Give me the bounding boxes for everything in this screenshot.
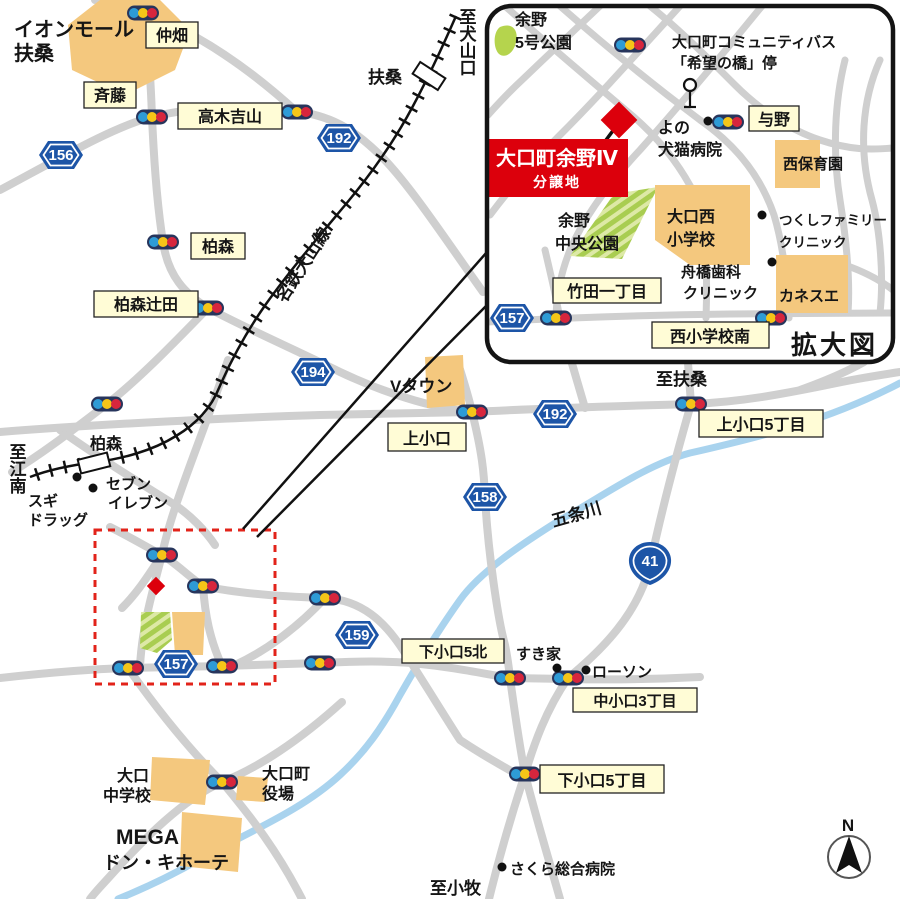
town-hall-label-line1: 大口町 xyxy=(262,764,310,783)
traffic-signal xyxy=(509,767,541,782)
route-shield-192-number: 192 xyxy=(326,130,351,147)
mega-donki-label-line2: ドン・キホーテ xyxy=(103,853,229,873)
seven-eleven-label-line1: セブン xyxy=(106,475,151,493)
yono-hospital-label-line2: 犬猫病院 xyxy=(658,140,722,159)
nishi-elementary-label-line2: 小学校 xyxy=(667,230,716,249)
area-label-kashiwamori-tsujita: 柏森辻田 xyxy=(114,295,178,314)
fuso-station-label: 扶桑 xyxy=(368,67,403,87)
traffic-signal xyxy=(552,671,584,686)
traffic-signal xyxy=(281,105,313,120)
area-label-kamioguchi-5chome: 上小口5丁目 xyxy=(717,416,806,434)
route-shield-157-number: 157 xyxy=(163,656,188,673)
yono-chuo-park-label-line1: 余野 xyxy=(557,211,590,230)
sakura-hospital-label: さくら総合病院 xyxy=(510,860,615,878)
area-label-kamioguchi: 上小口 xyxy=(403,430,451,448)
area-label-takagi-yoshiyama: 高木吉山 xyxy=(198,107,262,126)
kanesue-label: カネスエ xyxy=(779,288,839,305)
area-label-shimooguchi-5-kita: 下小口5北 xyxy=(419,644,487,661)
traffic-signal xyxy=(540,311,572,326)
yono-hospital-label-line1: よの xyxy=(658,119,690,137)
route-shield-158-number: 158 xyxy=(472,489,497,506)
funahashi-clinic-dot xyxy=(768,258,777,267)
nishi-elementary-label-line1: 大口西 xyxy=(667,207,715,226)
traffic-signal xyxy=(136,110,168,125)
route-shield-159-number: 159 xyxy=(344,627,369,644)
sukiya-label: すき家 xyxy=(516,645,561,663)
yono-park-label-line2: 5号公園 xyxy=(515,34,572,52)
funahashi-dental-label-line2: クリニック xyxy=(683,285,758,302)
area-label-nishi-shogakko-minami: 西小学校南 xyxy=(670,327,750,346)
inset-map: 157 余野 5号公園 大口町コミュニティバス 「希望の橋」停 よの 犬猫病院 … xyxy=(487,6,893,362)
route-shield-156-number: 156 xyxy=(48,147,73,164)
kashiwamori-station-label: 柏森 xyxy=(90,434,123,453)
yono-park-label-line1: 余野 xyxy=(514,10,547,29)
area-label-nakahata: 仲畑 xyxy=(156,26,188,45)
traffic-signal xyxy=(147,235,179,250)
nishi-hoikuen-label: 西保育園 xyxy=(783,155,843,173)
to-fuso-label: 至扶桑 xyxy=(656,369,708,389)
area-label-saito: 斉藤 xyxy=(94,86,127,105)
route-shield-192-number: 192 xyxy=(542,406,567,423)
seven-eleven-dot xyxy=(89,484,98,493)
junior-high-building xyxy=(150,757,210,805)
funahashi-dental-label-line1: 舟橋歯科 xyxy=(681,263,741,281)
community-bus-label-line1: 大口町コミュニティバス xyxy=(672,33,836,51)
school-block-in-box xyxy=(172,612,205,655)
junior-high-label-line2: 中学校 xyxy=(103,786,152,805)
route-shield-41-number: 41 xyxy=(642,553,659,570)
area-label-nakaoguchi-3chome: 中小口3丁目 xyxy=(593,692,676,710)
junior-high-label-line1: 大口 xyxy=(117,766,149,785)
aeon-mall-label-line1: イオンモール xyxy=(14,19,134,41)
town-hall-label-line2: 役場 xyxy=(262,784,294,803)
location-map: 156 192 194 192 158 159 157 41 仲畑 斉藤 高木吉… xyxy=(0,0,900,899)
sugi-drug-label-line1: スギ xyxy=(28,492,58,510)
vtown-label: Vタウン xyxy=(390,377,452,396)
area-label-takeda-1chome: 竹田一丁目 xyxy=(566,282,647,301)
traffic-signal xyxy=(456,405,488,420)
traffic-signal xyxy=(614,38,646,53)
inset-caption: 拡大図 xyxy=(791,330,878,360)
route-shield-157-number: 157 xyxy=(499,310,524,327)
community-bus-label-line2: 「希望の橋」停 xyxy=(672,54,777,72)
north-label: N xyxy=(842,816,854,835)
sugi-drug-dot xyxy=(73,473,82,482)
yono-hospital-dot xyxy=(704,117,713,126)
traffic-signal xyxy=(91,397,123,412)
aeon-mall-label-line2: 扶桑 xyxy=(14,41,55,65)
route-shield-194-number: 194 xyxy=(300,364,326,381)
area-label-shimooguchi-5chome: 下小口5丁目 xyxy=(558,772,647,790)
traffic-signal xyxy=(309,591,341,606)
sakura-hospital-dot xyxy=(498,863,507,872)
map-canvas: 156 192 194 192 158 159 157 41 仲畑 斉藤 高木吉… xyxy=(0,0,900,899)
sukiya-dot xyxy=(553,664,562,673)
traffic-signal xyxy=(206,775,238,790)
traffic-signal xyxy=(146,548,178,563)
to-konan-label: 至江南 xyxy=(7,443,27,495)
traffic-signal xyxy=(112,661,144,676)
traffic-signal xyxy=(494,671,526,686)
traffic-signal xyxy=(187,579,219,594)
area-label-kashiwamori: 柏森 xyxy=(202,237,235,256)
to-komaki-label: 至小牧 xyxy=(430,878,482,898)
traffic-signal xyxy=(675,397,707,412)
mega-donki-label-line1: MEGA xyxy=(116,826,179,849)
sugi-drug-label-line2: ドラッグ xyxy=(28,511,88,529)
to-inuyamaguchi-label: 至犬山口 xyxy=(457,8,477,76)
traffic-signal xyxy=(712,115,744,130)
area-label-yono: 与野 xyxy=(758,111,790,129)
tsukushi-clinic-label-line1: つくしファミリー xyxy=(779,213,887,228)
traffic-signal xyxy=(206,659,238,674)
tsukushi-clinic-label-line2: クリニック xyxy=(779,235,847,250)
yono-chuo-park-label-line2: 中央公園 xyxy=(555,234,619,253)
lawson-dot xyxy=(582,666,591,675)
traffic-signal xyxy=(304,656,336,671)
site-title-line2: 分譲地 xyxy=(533,174,581,190)
tsukushi-clinic-dot xyxy=(758,211,767,220)
site-title-line1: 大口町余野Ⅳ xyxy=(496,146,618,170)
lawson-label: ローソン xyxy=(592,664,652,681)
seven-eleven-label-line2: イレブン xyxy=(108,494,168,512)
